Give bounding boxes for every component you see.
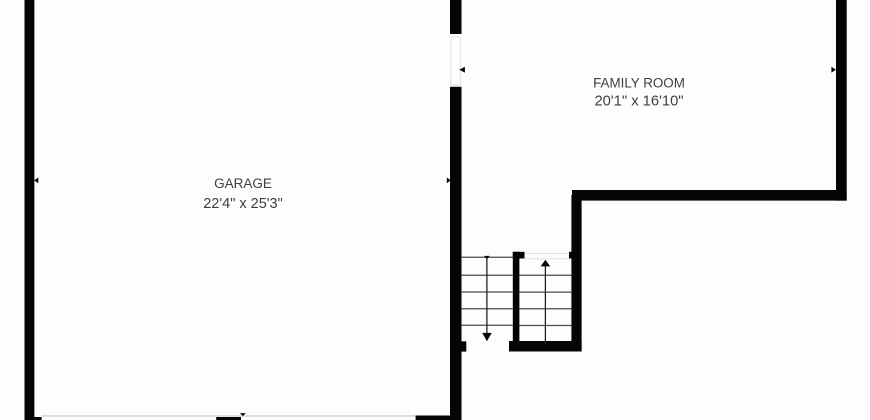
svg-text:GARAGE: GARAGE: [214, 176, 272, 191]
svg-text:FAMILY ROOM: FAMILY ROOM: [593, 75, 685, 90]
svg-text:22'4" x 25'3": 22'4" x 25'3": [203, 196, 283, 212]
svg-text:20'1" x 16'10": 20'1" x 16'10": [594, 94, 683, 110]
